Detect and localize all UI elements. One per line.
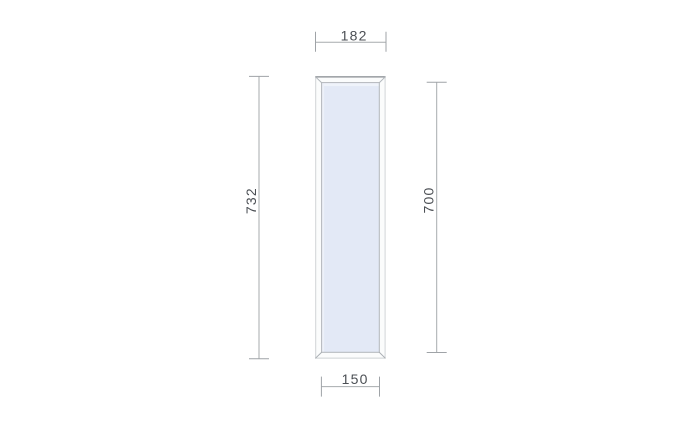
- svg-text:700: 700: [421, 187, 437, 214]
- svg-text:182: 182: [341, 27, 368, 43]
- svg-text:732: 732: [243, 187, 259, 214]
- svg-text:150: 150: [342, 371, 369, 387]
